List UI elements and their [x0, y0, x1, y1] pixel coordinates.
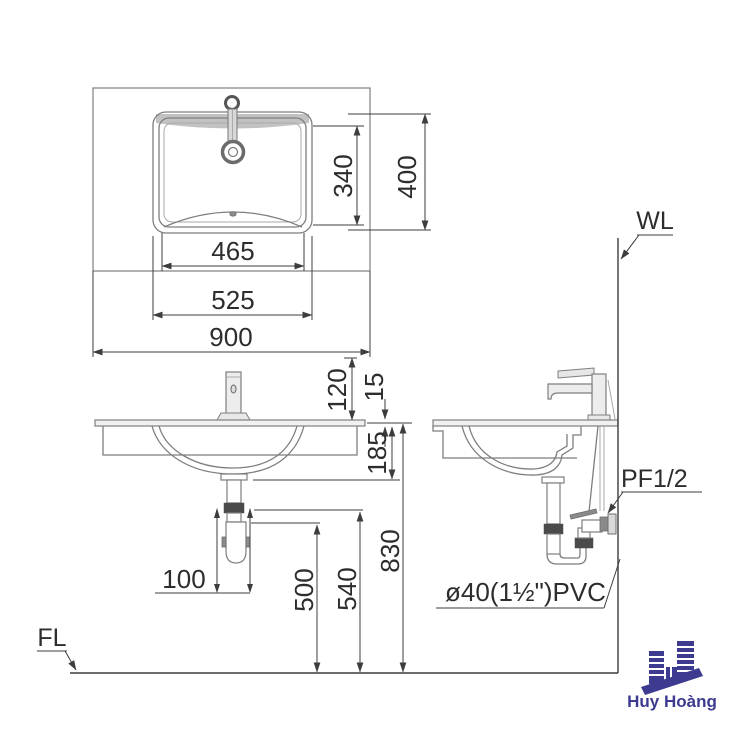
front-dimensions: 120 15 185 830 540 500 [155, 358, 412, 672]
drain-mark [230, 212, 236, 216]
drain-flange [221, 474, 247, 480]
dim-100-label: 100 [162, 564, 205, 594]
counter-apron-side [433, 426, 577, 458]
drain-coupling-nut [224, 503, 244, 513]
popup-lever [570, 509, 597, 519]
faucet-lever [558, 368, 594, 378]
faucet-handle-circle [226, 97, 239, 110]
tailpipe-lower-side [547, 534, 560, 554]
faucet-spout [548, 384, 592, 399]
supply-label: PF1/2 [608, 465, 702, 513]
dim-340-label: 340 [328, 154, 358, 197]
bowl-outer-side [462, 426, 581, 475]
popup-rod [589, 426, 598, 512]
drain-pipe-label: ø40(1½")PVC [436, 559, 620, 608]
drain-flange-side [542, 477, 564, 483]
bowl-inner-side [469, 426, 567, 469]
tailpipe-side [547, 483, 560, 524]
bowl-inner [159, 426, 297, 468]
coupling-nut-side [544, 524, 563, 534]
wall-flange [608, 514, 616, 534]
dimension-bowl-depth: 185 [253, 427, 400, 480]
dim-185-label: 185 [362, 431, 392, 474]
logo-buildings-icon [641, 641, 703, 695]
waste-arm [582, 520, 602, 532]
popup-nub-right [246, 537, 250, 547]
wall-line-label: WL [621, 207, 674, 259]
drain-pipe-lower [227, 513, 241, 522]
dim-500-label: 500 [289, 568, 319, 611]
popup-tube [226, 522, 246, 563]
dim-900-label: 900 [209, 322, 252, 352]
logo-brand-text: Huy Hoàng [627, 692, 717, 711]
dimension-waste-outlet-height: 500 [251, 523, 320, 672]
faucet-logo-dot [231, 385, 236, 393]
brand-logo: Huy Hoàng [627, 641, 717, 711]
faucet-escutcheon-side [588, 415, 610, 420]
pvc-label: ø40(1½")PVC [445, 577, 606, 607]
side-view [433, 368, 618, 564]
pipe-labels: PF1/2 ø40(1½")PVC [436, 465, 702, 608]
pf-label: PF1/2 [621, 465, 688, 493]
drain-tailpipe [227, 480, 241, 503]
dim-400-label: 400 [392, 155, 422, 198]
drain-assembly-front [221, 474, 250, 563]
trap-assembly-side [542, 426, 616, 564]
counter-apron [103, 426, 357, 455]
trap-elbow-inner [560, 548, 580, 558]
drawing-page: 340 400 465 525 900 [0, 0, 740, 740]
floor-line-label: FL [37, 624, 76, 670]
faucet-side [548, 368, 615, 420]
dimension-faucet-height: 120 [322, 358, 357, 420]
fl-label: FL [37, 624, 66, 652]
dim-540-label: 540 [332, 567, 362, 610]
technical-drawing: 340 400 465 525 900 [0, 0, 740, 740]
popup-nub-left [222, 537, 226, 547]
countertop-slab [95, 420, 365, 426]
dim-15-label: 15 [359, 373, 389, 402]
dim-465-label: 465 [211, 236, 254, 266]
dim-120-label: 120 [322, 368, 352, 411]
wall-coupling [600, 517, 608, 531]
faucet-front [217, 372, 250, 420]
faucet-body-side [592, 374, 606, 420]
trap-nut [575, 538, 593, 548]
dim-525-label: 525 [211, 285, 254, 315]
supply-hose [608, 380, 615, 419]
faucet-escutcheon [217, 413, 250, 420]
countertop-slab-side [433, 420, 618, 426]
wl-label: WL [636, 207, 674, 235]
dim-830-label: 830 [375, 529, 405, 572]
faucet-spout-hole [229, 148, 238, 157]
